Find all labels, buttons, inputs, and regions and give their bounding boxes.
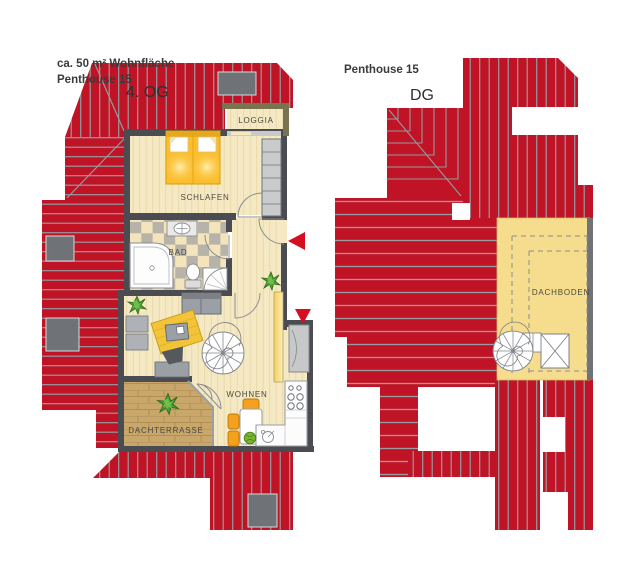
floorplan-page: LOGGIA SCHLAFEN BAD WOHNEN DACHTERRASSE … [0, 0, 640, 587]
level-label: 4. OG [126, 84, 169, 101]
attic-room: DACHBODEN [493, 218, 593, 380]
sofa [182, 293, 221, 314]
roof-center-block [463, 135, 593, 218]
floorplan-4og: LOGGIA SCHLAFEN BAD WOHNEN DACHTERRASSE … [42, 58, 314, 530]
roof-hatch-box [541, 334, 569, 368]
entrance-door-floor [281, 217, 287, 244]
plan-title: Penthouse 15 [57, 74, 132, 86]
entrance-arrow [288, 232, 305, 250]
room-label-loggia: LOGGIA [238, 116, 273, 125]
dining-chair [243, 399, 259, 410]
area-label: ca. 50 m² Wohnfläche [57, 58, 174, 70]
roof-left-band-dg [335, 198, 497, 387]
dining-chair [228, 431, 239, 446]
chimney [218, 72, 256, 95]
plan-header-dg: Penthouse 15 DG [344, 64, 434, 104]
chimney [46, 236, 74, 261]
room-label-bedroom: SCHLAFEN [180, 193, 229, 202]
room-label-terrace: DACHTERRASSE [128, 426, 203, 435]
attic-wall [587, 218, 593, 380]
coffee-table [165, 323, 189, 341]
roof-notch [543, 417, 565, 452]
roof-top-block [463, 58, 578, 135]
room-label-living: WOHNEN [226, 390, 267, 399]
pillow [170, 137, 188, 152]
pillow [198, 137, 216, 152]
room-label-bathroom: BAD [169, 248, 188, 257]
wardrobe [262, 139, 281, 216]
chimney [248, 494, 277, 527]
chimney [46, 318, 79, 351]
toilet [185, 264, 201, 288]
dining-chair [228, 414, 239, 429]
bathtub [130, 243, 173, 288]
window-front [274, 292, 283, 382]
fruit-bowl [244, 432, 256, 444]
level-label: DG [410, 87, 434, 104]
roof-left-band [42, 200, 128, 410]
floorplan-dg: DACHBODEN Penthouse 15 DG [335, 58, 593, 530]
double-bed [163, 131, 224, 184]
armchair-left [126, 334, 148, 350]
roof-notch [452, 203, 470, 220]
sideboard [126, 316, 148, 332]
shower [203, 268, 227, 290]
bathroom-sink [167, 221, 197, 236]
roof-left-lower [96, 410, 121, 448]
plan-title: Penthouse 15 [344, 64, 419, 76]
room-label-attic: DACHBODEN [532, 288, 590, 297]
roof-bottom-right [543, 380, 593, 530]
fridge [289, 325, 309, 372]
roof-bottom-column [495, 380, 540, 530]
roof-hip-corner [387, 108, 463, 198]
floorplan-drawing: LOGGIA SCHLAFEN BAD WOHNEN DACHTERRASSE … [0, 0, 640, 587]
roof-lower-band [408, 451, 495, 477]
